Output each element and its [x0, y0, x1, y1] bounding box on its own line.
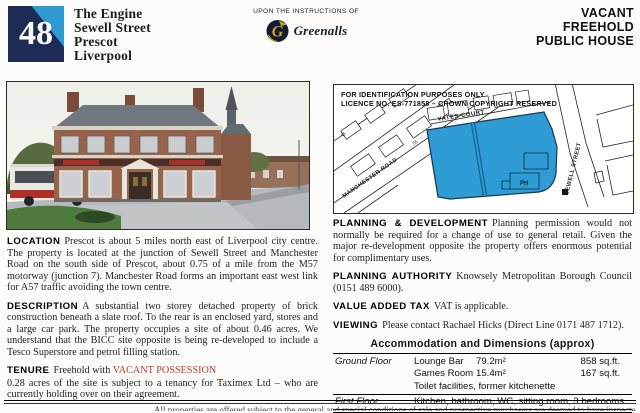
footer-rule — [4, 400, 636, 404]
vat-heading: VALUE ADDED TAX — [333, 301, 430, 312]
tenure-highlight: VACANT POSSESSION — [113, 365, 217, 376]
floor-label — [335, 381, 414, 392]
room-metric: 15.4m² — [476, 368, 544, 379]
viewing-heading: VIEWING — [333, 320, 378, 331]
map-label-ph: PH — [520, 181, 528, 187]
room-name: Lounge Bar — [414, 356, 476, 367]
vat-paragraph: VALUE ADDED TAXVAT is applicable. — [333, 301, 632, 313]
tenure-paragraph: TENUREFreehold with VACANT POSSESSION — [7, 365, 318, 377]
room-metric: 79.2m² — [476, 356, 544, 367]
instructions-label: UPON THE INSTRUCTIONS OF — [243, 8, 369, 15]
property-address: The Engine Sewell Street Prescot Liverpo… — [74, 7, 151, 63]
status-line-1: VACANT — [536, 6, 634, 20]
description-paragraph: DESCRIPTIONA substantial two storey deta… — [7, 301, 318, 359]
property-photo — [6, 81, 310, 230]
room-name: Toilet facilities, former kitchenette — [414, 381, 632, 392]
map-illustration: PH YATES COURT MANCHESTER ROAD SEWELL ST… — [334, 85, 633, 213]
accommodation-title: Accommodation and Dimensions (approx) — [333, 338, 632, 350]
svg-text:G: G — [271, 24, 283, 41]
planning-development-paragraph: PLANNING & DEVELOPMENTPlanning permissio… — [333, 218, 632, 264]
viewing-paragraph: VIEWINGPlease contact Rachael Hicks (Dir… — [333, 320, 632, 332]
status-block: VACANT FREEHOLD PUBLIC HOUSE — [536, 6, 634, 48]
address-line-3: Prescot — [74, 35, 151, 49]
address-line-4: Liverpool — [74, 49, 151, 63]
vat-body: VAT is applicable. — [434, 301, 509, 312]
room-name: Games Room — [414, 368, 476, 379]
address-line-2: Sewell Street — [74, 21, 151, 35]
status-line-3: PUBLIC HOUSE — [536, 34, 634, 48]
instructions-block: UPON THE INSTRUCTIONS OF G Greenalls — [243, 8, 369, 43]
table-row: Ground Floor Lounge Bar 79.2m² 858 sq.ft… — [333, 354, 632, 367]
planning-authority-heading: PLANNING AUTHORITY — [333, 271, 452, 282]
location-heading: LOCATION — [7, 236, 60, 247]
photo-illustration — [7, 82, 309, 229]
greenalls-logo-icon: G — [265, 18, 290, 43]
tenure-body: 0.28 acres of the site is subject to a t… — [7, 378, 318, 401]
planning-development-heading: PLANNING & DEVELOPMENT — [333, 218, 488, 229]
floor-label — [335, 368, 414, 379]
location-plan: PH YATES COURT MANCHESTER ROAD SEWELL ST… — [333, 84, 634, 214]
viewing-body: Please contact Rachael Hicks (Direct Lin… — [382, 320, 624, 331]
brand-wordmark: Greenalls — [294, 23, 348, 39]
tenure-heading: TENURE — [7, 365, 49, 376]
tenure-lead: Freehold with — [53, 365, 112, 376]
floor-label: Ground Floor — [335, 356, 414, 367]
table-row: Games Room 15.4m² 167 sq.ft. — [333, 367, 632, 380]
lot-number-badge: 48 — [8, 6, 64, 62]
status-line-2: FREEHOLD — [536, 20, 634, 34]
description-heading: DESCRIPTION — [7, 301, 78, 312]
location-paragraph: LOCATIONPrescot is about 5 miles north e… — [7, 236, 318, 294]
right-text-column: PLANNING & DEVELOPMENTPlanning permissio… — [333, 218, 632, 413]
left-text-column: LOCATIONPrescot is about 5 miles north e… — [7, 236, 318, 408]
address-line-1: The Engine — [74, 7, 151, 21]
bush — [75, 211, 115, 223]
room-imperial: 858 sq.ft. — [544, 356, 632, 367]
planning-authority-paragraph: PLANNING AUTHORITYKnowsely Metropolitan … — [333, 271, 632, 294]
lot-number: 48 — [8, 6, 64, 62]
map-notice-line-1: FOR IDENTIFICATION PURPOSES ONLY — [341, 90, 485, 99]
page-footer: All properties are offered subject to th… — [4, 400, 636, 411]
table-row: Toilet facilities, former kitchenette — [333, 379, 632, 392]
room-imperial: 167 sq.ft. — [544, 368, 632, 379]
map-notice-line-2: LICENCE NO. ES-771858 – CROWN COPYRIGHT … — [341, 99, 557, 108]
